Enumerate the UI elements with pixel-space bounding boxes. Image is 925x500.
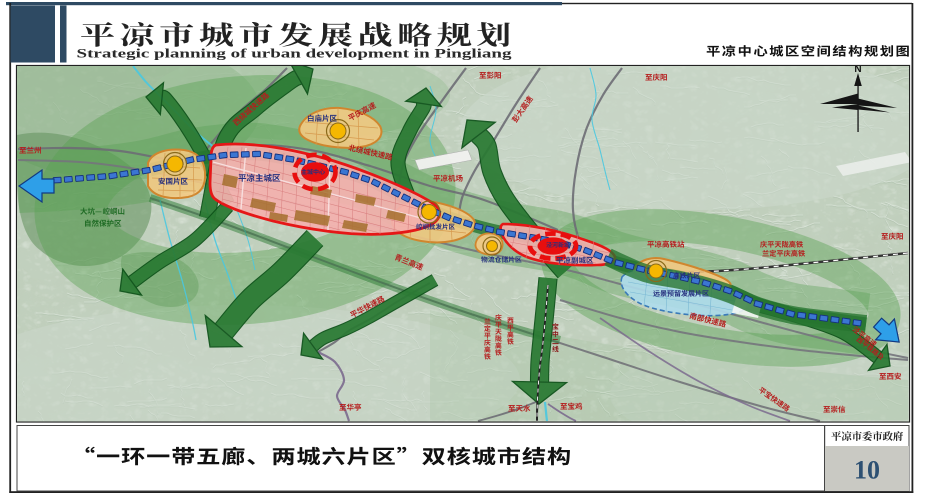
svg-text:10: 10 — [854, 456, 880, 485]
svg-text:Strategic planning of urban de: Strategic planning of urban development … — [77, 47, 512, 61]
